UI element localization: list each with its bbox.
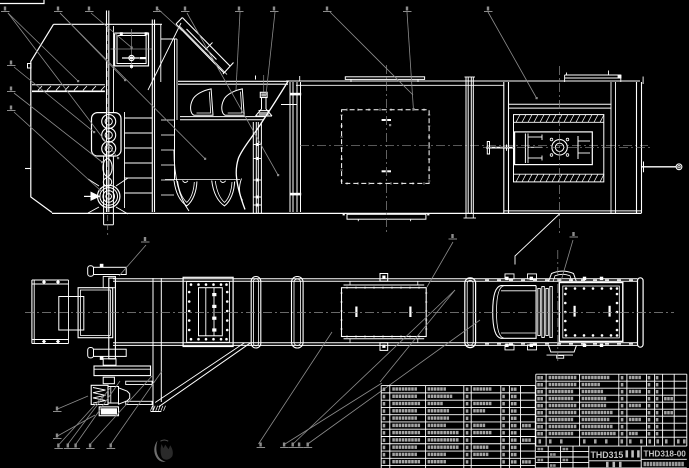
svg-text:THD315: THD315 xyxy=(591,450,624,460)
svg-text:THD318-00: THD318-00 xyxy=(644,450,687,459)
